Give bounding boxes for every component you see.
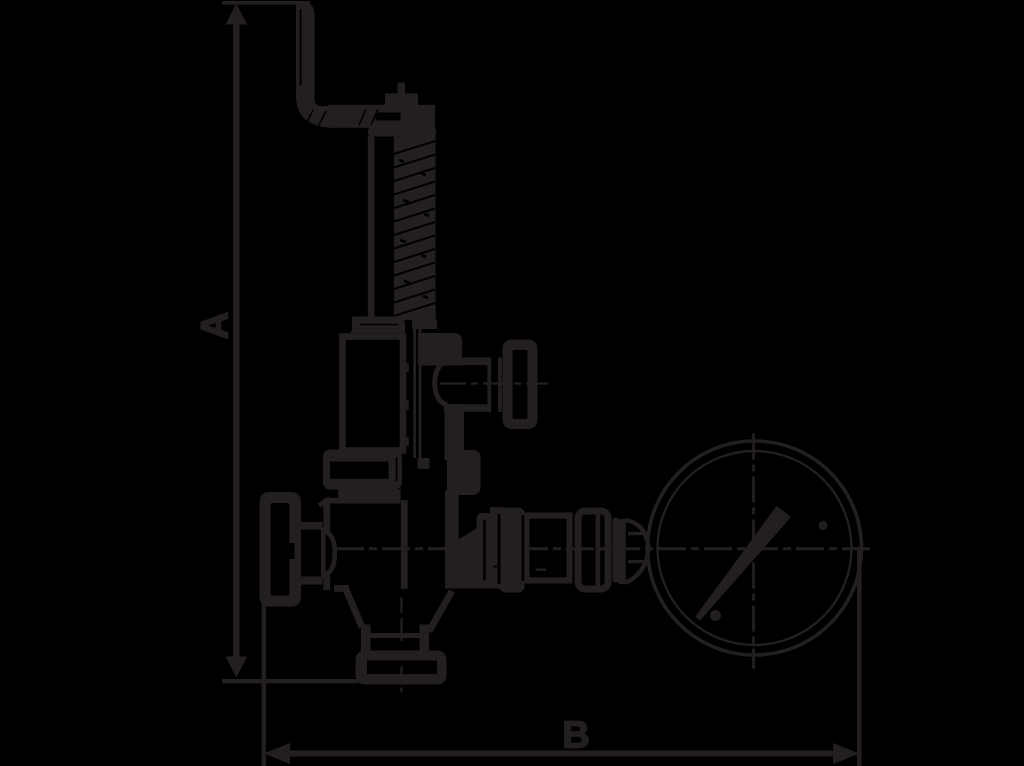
svg-text:B: B	[562, 715, 589, 757]
svg-text:A: A	[195, 312, 237, 339]
